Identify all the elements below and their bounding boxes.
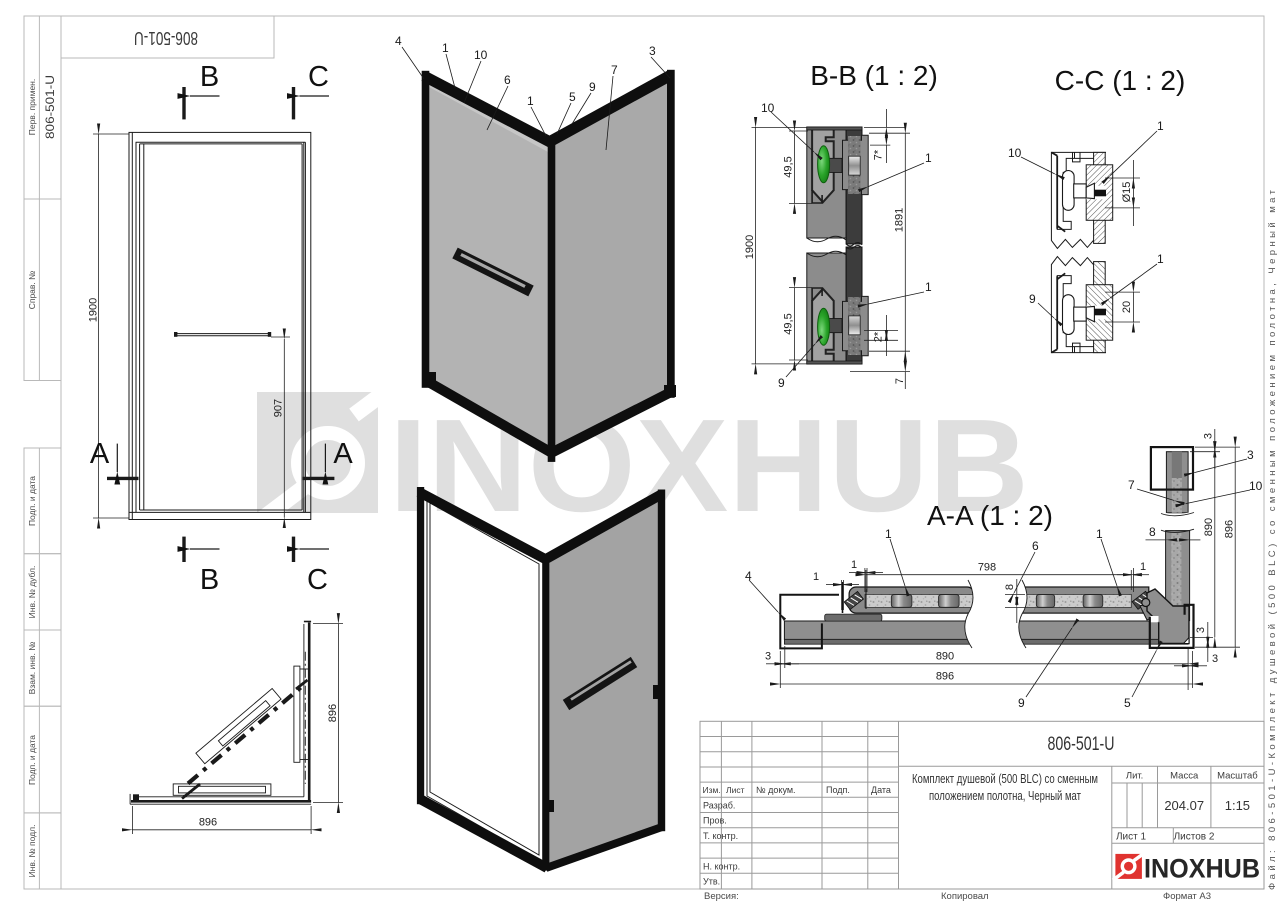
svg-text:6: 6 [1032, 539, 1039, 553]
svg-text:3: 3 [1247, 448, 1254, 462]
svg-text:3: 3 [1203, 433, 1215, 439]
svg-text:B: B [200, 61, 219, 93]
svg-text:2*: 2* [873, 331, 885, 342]
svg-text:9: 9 [778, 376, 785, 390]
svg-text:Взам. инв. №: Взам. инв. № [27, 642, 37, 695]
svg-text:B-B (1 : 2): B-B (1 : 2) [810, 60, 938, 91]
svg-text:798: 798 [978, 562, 996, 574]
svg-text:Масса: Масса [1170, 771, 1199, 782]
svg-text:Т. контр.: Т. контр. [703, 831, 738, 841]
svg-text:Копировал: Копировал [941, 891, 989, 902]
svg-text:890: 890 [1203, 518, 1215, 536]
svg-text:Формат A3: Формат A3 [1163, 891, 1211, 902]
svg-text:1: 1 [1140, 561, 1146, 573]
svg-text:896: 896 [199, 817, 217, 829]
svg-text:1900: 1900 [744, 235, 756, 259]
svg-text:5: 5 [569, 90, 576, 104]
svg-text:C: C [307, 564, 328, 596]
svg-text:Лист 1: Лист 1 [1116, 832, 1147, 843]
svg-text:Ø15: Ø15 [1121, 182, 1133, 203]
svg-text:Комплект душевой (500 BLC) со: Комплект душевой (500 BLC) со сменным [912, 772, 1098, 786]
svg-text:49,5: 49,5 [783, 313, 795, 334]
svg-text:Справ. №: Справ. № [27, 271, 37, 310]
svg-text:3: 3 [649, 44, 656, 58]
svg-text:3: 3 [1212, 653, 1218, 665]
svg-text:10: 10 [1008, 146, 1022, 160]
svg-text:1891: 1891 [894, 208, 906, 232]
svg-text:204.07: 204.07 [1164, 798, 1204, 813]
svg-text:Пров.: Пров. [703, 816, 727, 826]
svg-text:Версия:: Версия: [704, 891, 739, 902]
svg-text:10: 10 [1249, 479, 1263, 493]
svg-text:49,5: 49,5 [783, 156, 795, 177]
svg-text:Файл: 806-501-U-Комплект душев: Файл: 806-501-U-Комплект душевой (500 BL… [1267, 189, 1278, 890]
svg-text:896: 896 [327, 704, 339, 722]
svg-text:806-501-U: 806-501-U [1048, 734, 1115, 755]
svg-text:Утв.: Утв. [703, 877, 720, 887]
svg-text:A: A [333, 438, 353, 470]
svg-text:4: 4 [395, 34, 402, 48]
svg-text:A: A [90, 438, 110, 470]
svg-text:890: 890 [936, 651, 954, 663]
svg-text:8: 8 [1149, 525, 1156, 539]
svg-text:9: 9 [589, 80, 596, 94]
svg-text:B: B [200, 564, 219, 596]
svg-text:5: 5 [1124, 696, 1131, 710]
svg-text:Масштаб: Масштаб [1217, 771, 1258, 782]
svg-text:Изм.: Изм. [703, 785, 721, 795]
svg-text:Н. контр.: Н. контр. [703, 862, 740, 872]
svg-text:Подп.: Подп. [826, 785, 850, 795]
svg-text:Подп. и дата: Подп. и дата [27, 476, 37, 526]
svg-text:Лит.: Лит. [1126, 771, 1143, 782]
svg-text:1: 1 [1157, 119, 1164, 133]
svg-text:1: 1 [527, 94, 534, 108]
svg-text:Разраб.: Разраб. [703, 801, 735, 811]
svg-text:1: 1 [813, 571, 819, 583]
svg-text:9: 9 [1029, 292, 1036, 306]
svg-text:Инв. № подл.: Инв. № подл. [27, 825, 37, 878]
svg-text:C: C [308, 61, 329, 93]
svg-text:20: 20 [1121, 301, 1133, 313]
svg-text:положением полотна, Черный мат: положением полотна, Черный мат [929, 789, 1081, 803]
svg-text:Лист: Лист [726, 785, 745, 795]
svg-text:1900: 1900 [88, 298, 100, 322]
svg-text:806-501-U: 806-501-U [134, 28, 198, 48]
svg-text:INOXHUB: INOXHUB [1144, 854, 1260, 884]
svg-text:1: 1 [1096, 527, 1103, 541]
svg-text:907: 907 [273, 399, 285, 417]
svg-text:7: 7 [1128, 478, 1135, 492]
svg-text:7: 7 [611, 63, 618, 77]
svg-text:1: 1 [851, 559, 857, 571]
svg-text:Инв. № дубл.: Инв. № дубл. [27, 566, 37, 619]
svg-text:Листов 2: Листов 2 [1174, 832, 1215, 843]
svg-text:1: 1 [442, 41, 449, 55]
svg-text:896: 896 [1224, 520, 1236, 538]
svg-text:1: 1 [885, 527, 892, 541]
svg-text:10: 10 [474, 48, 488, 62]
svg-text:4: 4 [745, 569, 752, 583]
svg-text:Подп. и дата: Подп. и дата [27, 735, 37, 785]
svg-text:№ докум.: № докум. [756, 785, 796, 795]
svg-text:1:15: 1:15 [1225, 798, 1250, 813]
svg-text:806-501-U: 806-501-U [43, 75, 57, 139]
svg-text:3: 3 [1195, 627, 1207, 633]
svg-text:6: 6 [504, 73, 511, 87]
svg-text:3: 3 [765, 651, 771, 663]
svg-text:A-A (1 : 2): A-A (1 : 2) [927, 500, 1053, 531]
svg-text:896: 896 [936, 671, 954, 683]
svg-text:C-C (1 : 2): C-C (1 : 2) [1055, 65, 1186, 96]
svg-text:8: 8 [1004, 584, 1016, 590]
svg-text:7*: 7* [873, 149, 885, 160]
svg-text:1: 1 [925, 151, 932, 165]
svg-text:9: 9 [1018, 696, 1025, 710]
svg-text:10: 10 [761, 101, 775, 115]
svg-text:1: 1 [1157, 252, 1164, 266]
svg-text:Перв. примен.: Перв. примен. [27, 79, 37, 136]
svg-text:Дата: Дата [871, 785, 891, 795]
svg-text:7: 7 [894, 378, 906, 384]
svg-text:1: 1 [925, 280, 932, 294]
